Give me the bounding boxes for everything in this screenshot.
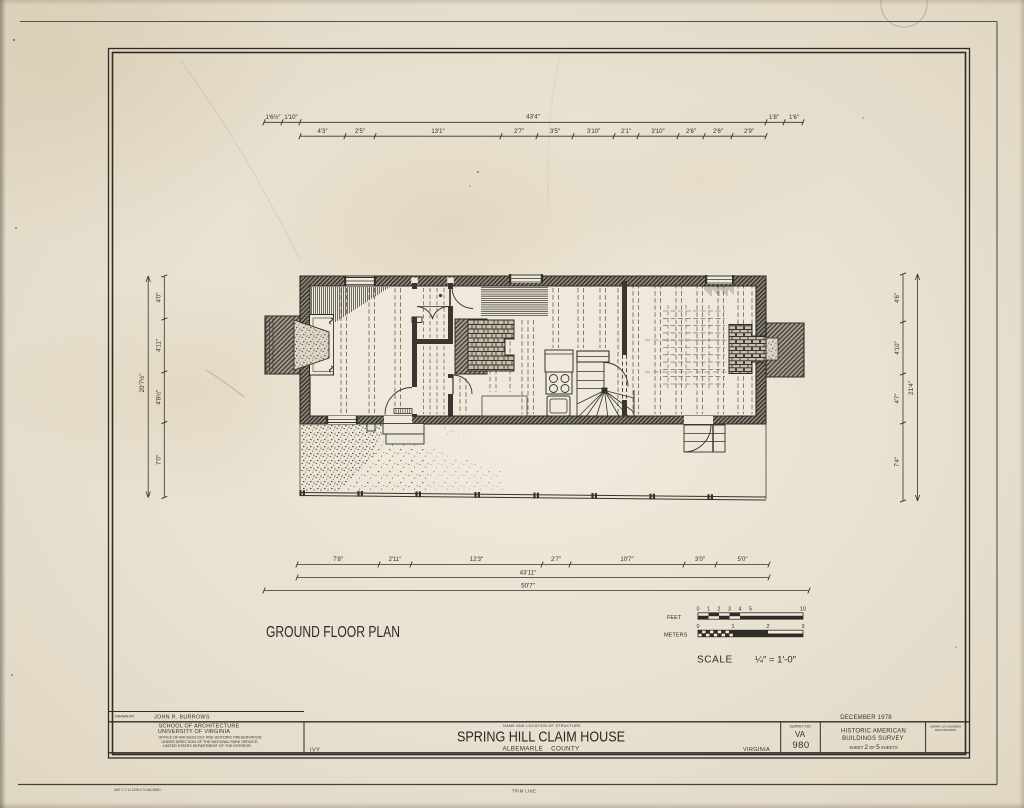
svg-text:2: 2: [718, 607, 721, 613]
svg-text:5′0″: 5′0″: [738, 557, 749, 563]
svg-text:BUILDINGS SURVEY: BUILDINGS SURVEY: [842, 736, 904, 742]
svg-text:4: 4: [739, 607, 742, 613]
svg-text:3′10″: 3′10″: [651, 129, 665, 135]
svg-text:4′8½″: 4′8½″: [155, 389, 162, 405]
svg-text:2′11″: 2′11″: [389, 557, 403, 563]
svg-text:4′10″: 4′10″: [895, 340, 901, 354]
svg-text:980: 980: [792, 740, 809, 751]
svg-text:0: 0: [697, 607, 700, 613]
svg-text:SHEET 2 OF 5 SHEETS: SHEET 2 OF 5 SHEETS: [849, 744, 898, 751]
svg-text:1′8″: 1′8″: [769, 115, 780, 121]
svg-text:12′3″: 12′3″: [470, 557, 484, 563]
svg-text:1: 1: [707, 607, 710, 613]
svg-text:GROUND FLOOR PLAN: GROUND FLOOR PLAN: [266, 624, 400, 641]
svg-text:DRAWN BY:: DRAWN BY:: [115, 715, 135, 719]
svg-text:2′5″: 2′5″: [355, 129, 366, 135]
svg-text:NAME AND LOCATION OF STRUCTURE: NAME AND LOCATION OF STRUCTURE: [503, 724, 581, 728]
svg-text:2′6″: 2′6″: [713, 129, 724, 135]
svg-text:20′7½″: 20′7½″: [139, 373, 146, 393]
svg-text:1′6½″: 1′6½″: [266, 114, 282, 121]
svg-text:SPRING HILL CLAIM HOUSE: SPRING HILL CLAIM HOUSE: [457, 729, 625, 745]
svg-text:43′11″: 43′11″: [520, 570, 537, 577]
svg-text:43′4″: 43′4″: [526, 114, 540, 121]
svg-text:4′11″: 4′11″: [156, 338, 162, 352]
svg-text:DECEMBER 1978: DECEMBER 1978: [840, 715, 892, 721]
svg-text:METERS: METERS: [664, 633, 688, 639]
svg-text:21′4″: 21′4″: [908, 380, 915, 394]
svg-text:VA: VA: [795, 730, 806, 739]
svg-text:LIBRARY OF CONGRESS: LIBRARY OF CONGRESS: [930, 725, 961, 729]
svg-text:3′10″: 3′10″: [587, 129, 601, 135]
svg-text:7′0″: 7′0″: [156, 454, 162, 465]
svg-text:13′1″: 13′1″: [431, 129, 445, 135]
svg-text:50′7″: 50′7″: [521, 583, 535, 590]
svg-text:K&E C.T 14 1255 6.74 46C2685 I: K&E C.T 14 1255 6.74 46C2685 I: [114, 788, 162, 792]
svg-text:UNIVERSITY OF VIRGINIA: UNIVERSITY OF VIRGINIA: [158, 729, 230, 735]
svg-text:HISTORIC AMERICAN: HISTORIC AMERICAN: [841, 729, 906, 735]
svg-text:SCALE: SCALE: [697, 655, 733, 666]
svg-text:7′4″: 7′4″: [895, 456, 901, 467]
svg-text:4′6″: 4′6″: [895, 292, 901, 303]
svg-text:1: 1: [732, 624, 735, 630]
svg-text:4′0″: 4′0″: [156, 292, 162, 303]
svg-text:10′7″: 10′7″: [620, 557, 634, 563]
svg-text:2′1″: 2′1″: [621, 129, 632, 135]
svg-text:7′8″: 7′8″: [333, 557, 344, 563]
svg-text:2′7″: 2′7″: [551, 557, 562, 563]
svg-text:3: 3: [802, 624, 805, 630]
svg-text:1′6″: 1′6″: [789, 115, 800, 121]
svg-text:5: 5: [749, 607, 752, 613]
svg-text:2′9″: 2′9″: [744, 129, 755, 135]
svg-text:TRIM LINE: TRIM LINE: [512, 789, 536, 794]
svg-text:10: 10: [800, 607, 806, 613]
svg-text:3′5″: 3′5″: [550, 129, 561, 135]
svg-text:VIRGINIA: VIRGINIA: [743, 747, 770, 753]
svg-text:2′7″: 2′7″: [514, 129, 525, 135]
svg-text:3: 3: [728, 607, 731, 613]
svg-text:0: 0: [697, 624, 700, 630]
svg-text:2: 2: [767, 624, 770, 630]
svg-text:IVY: IVY: [310, 747, 320, 753]
svg-text:FEET: FEET: [667, 615, 682, 621]
svg-text:ALBEMARLE COUNTY: ALBEMARLE COUNTY: [502, 746, 580, 753]
svg-text:¼″ = 1′-0″: ¼″ = 1′-0″: [755, 655, 797, 666]
svg-text:SURVEY NO.: SURVEY NO.: [789, 724, 811, 728]
svg-text:4′3″: 4′3″: [318, 129, 329, 135]
svg-text:1′10″: 1′10″: [284, 115, 298, 121]
svg-text:3′0″: 3′0″: [695, 557, 706, 563]
svg-text:4′7″: 4′7″: [895, 393, 901, 404]
svg-text:JOHN R. BURROWS: JOHN R. BURROWS: [154, 714, 210, 720]
svg-text:UNITED STATES DEPARTMENT OF TH: UNITED STATES DEPARTMENT OF THE INTERIOR: [163, 744, 251, 748]
svg-text:2′6″: 2′6″: [686, 129, 697, 135]
svg-text:FIELD RECORDS: FIELD RECORDS: [935, 728, 956, 732]
